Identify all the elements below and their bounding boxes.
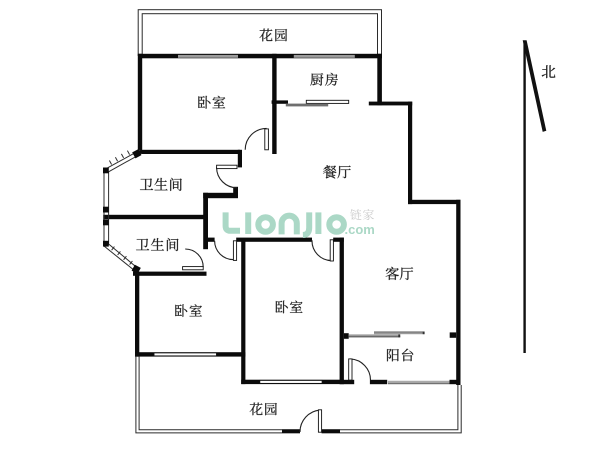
svg-text:.com: .com [345,222,375,237]
